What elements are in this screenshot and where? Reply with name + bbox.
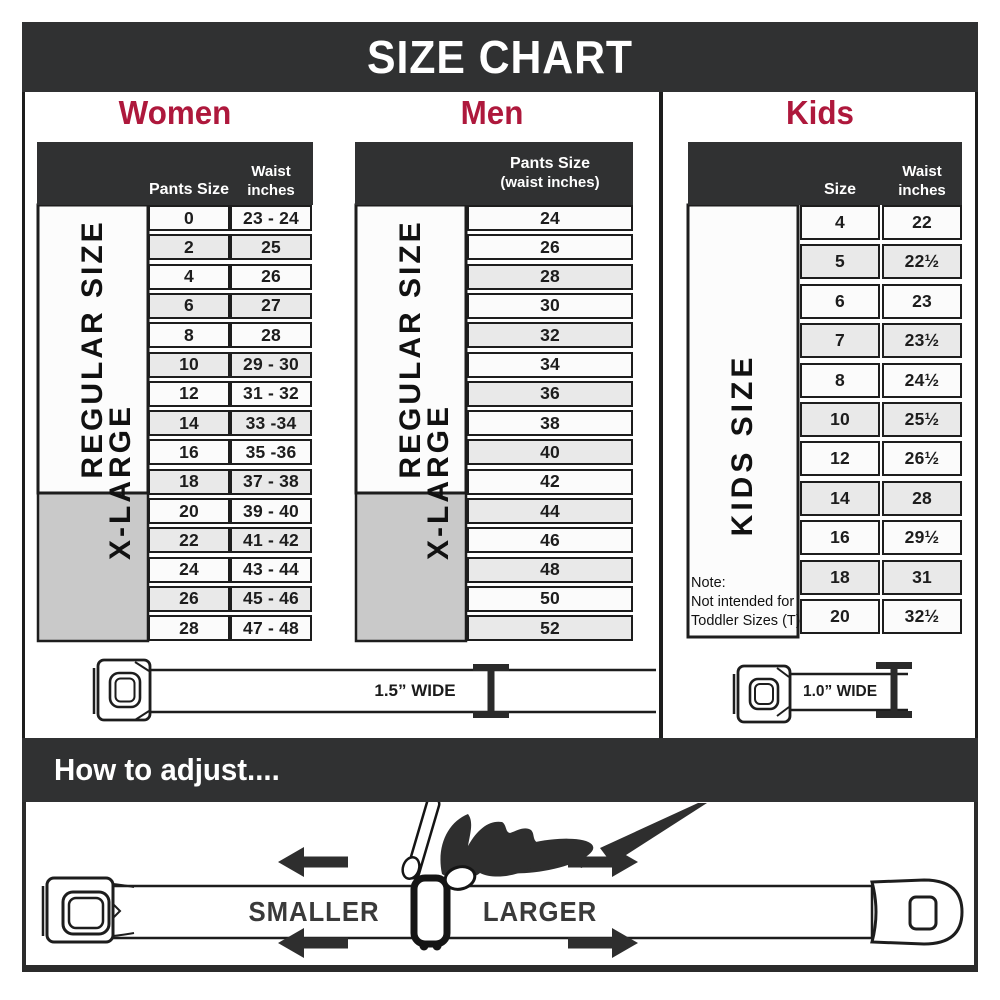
arrow-left-top-icon	[278, 847, 348, 877]
belt-slider-icon	[414, 878, 447, 944]
size-chart-banner: SIZE CHART	[22, 22, 978, 92]
pulled-strap	[600, 803, 707, 864]
slider-foot-left	[420, 942, 429, 951]
belt-tip-hole	[910, 897, 936, 929]
adult-belt-width-label: 1.5” WIDE	[374, 681, 455, 701]
size-chart-page: SIZE CHART Women Men Kids Pants Si	[0, 0, 1000, 1000]
how-to-adjust-title: How to adjust....	[54, 752, 280, 788]
adjust-illustration-panel: SMALLER LARGER	[22, 802, 978, 972]
kids-belt-buckle-icon	[738, 666, 790, 722]
smaller-label: SMALLER	[249, 896, 380, 928]
page-title: SIZE CHART	[367, 30, 633, 84]
size-chart-content: Women Men Kids Pants Size Waist inches P…	[22, 92, 978, 738]
belt-width-illustrations	[22, 92, 978, 738]
slider-foot-right	[433, 942, 442, 951]
adult-belt-buckle-icon	[98, 660, 150, 720]
larger-label: LARGER	[483, 896, 597, 928]
adjust-illustration	[22, 802, 978, 965]
how-to-adjust-banner: How to adjust....	[22, 738, 978, 802]
kids-belt-width-label: 1.0” WIDE	[803, 683, 877, 701]
